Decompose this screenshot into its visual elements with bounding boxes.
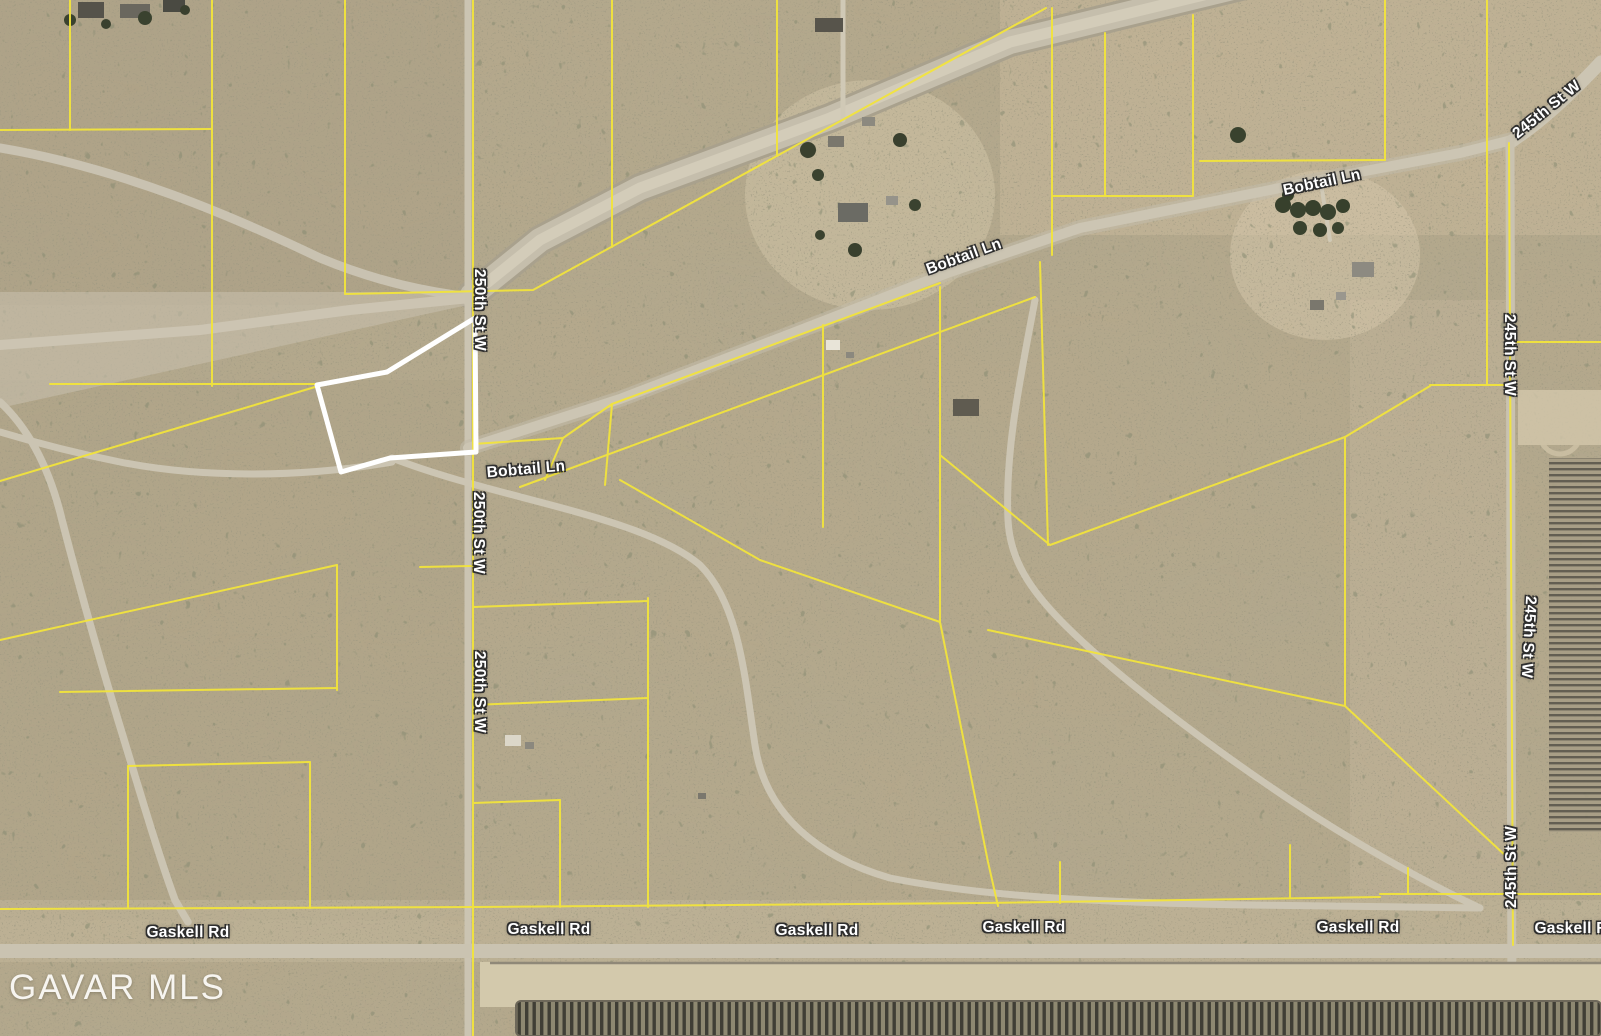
map-canvas [0,0,1601,1036]
mls-satellite-map: 250th St W250th St W250th St W245th St W… [0,0,1601,1036]
watermark: GAVAR MLS [9,968,226,1008]
desert-texture [0,0,1601,1036]
